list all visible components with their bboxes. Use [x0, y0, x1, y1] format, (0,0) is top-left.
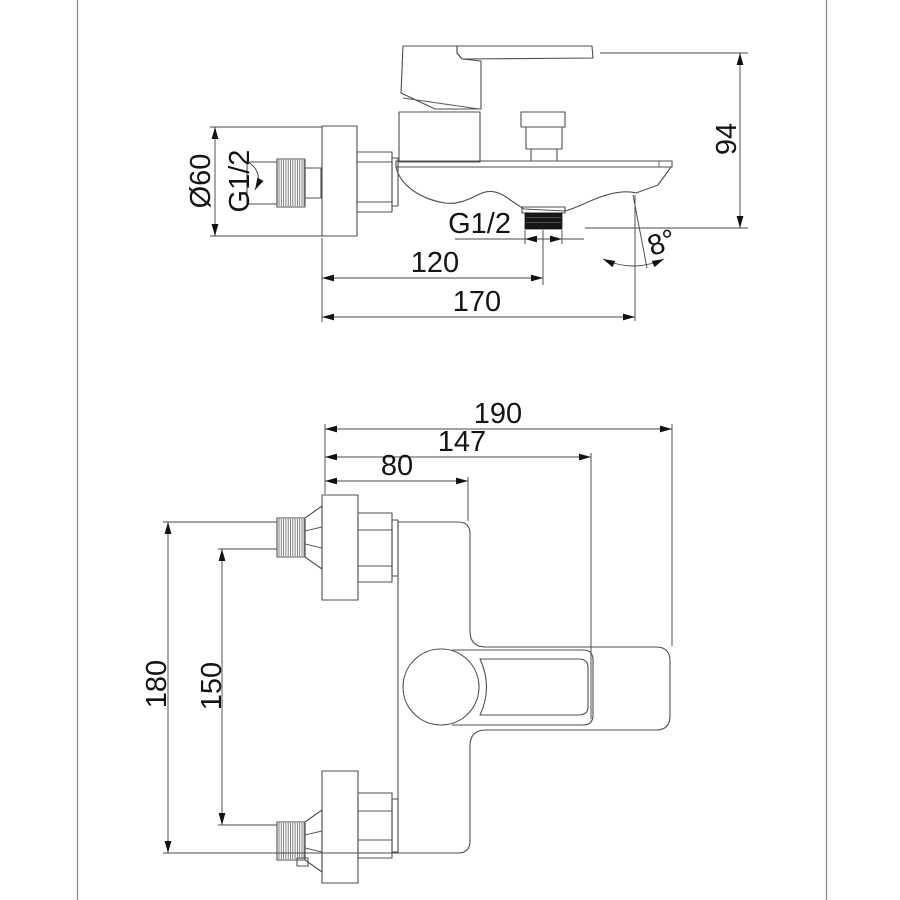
dim-80-label: 80 — [381, 450, 413, 482]
escutcheon-plan-upper — [322, 495, 358, 600]
mounting-nut-plan-upper — [358, 513, 392, 582]
dim-body-depth: 80 — [325, 450, 468, 521]
wall-connection-plan-upper — [277, 495, 398, 600]
dim-spout-angle-label: 8° — [643, 223, 680, 263]
dim-170-label: 170 — [453, 286, 501, 318]
wall-thread-label-group: G1/2 — [224, 150, 263, 213]
wall-thread-label: G1/2 — [224, 150, 256, 213]
cartridge-housing — [399, 112, 480, 162]
faucet-dimension-drawing: 8° Ø60 G1/2 94 — [0, 0, 900, 900]
plan-view: 190 147 80 180 — [141, 398, 672, 883]
lever-handle-side — [399, 46, 593, 162]
dim-height-label: 94 — [711, 123, 743, 155]
dim-overall-span: 180 — [141, 522, 398, 853]
diverter-knob — [521, 112, 565, 161]
handle-lever-plan — [452, 650, 593, 725]
side-view: 8° Ø60 G1/2 94 — [185, 46, 748, 322]
dim-overall-length-side: 170 — [322, 286, 635, 320]
wall-connection-plan-lower — [277, 771, 398, 883]
dim-180-label: 180 — [141, 660, 173, 708]
technical-drawing-page: 8° Ø60 G1/2 94 — [0, 0, 900, 900]
escutcheon-side — [322, 126, 357, 236]
dim-height: 94 — [585, 53, 748, 228]
escutcheon-plan-lower — [322, 771, 358, 883]
wall-connection-side — [247, 126, 398, 236]
handle-hub-plan — [403, 649, 479, 725]
outlet-thread-dark — [525, 213, 562, 229]
mounting-nut-side — [357, 152, 392, 212]
dim-147-label: 147 — [438, 426, 486, 458]
dim-outlet-thread: G1/2 — [448, 208, 584, 285]
dim-centers-distance: 150 — [196, 549, 277, 825]
outlet-thread-label: G1/2 — [448, 208, 511, 240]
dim-outlet-offset: 120 — [322, 238, 543, 322]
dim-150-label: 150 — [196, 662, 228, 710]
spout-body-side — [396, 161, 672, 229]
spout-angle-dimension: 8° — [602, 195, 681, 321]
faucet-body-plan — [398, 522, 670, 853]
mounting-nut-plan-lower — [358, 793, 392, 858]
dim-120-label: 120 — [411, 247, 459, 279]
dim-handle-reach: 147 — [325, 426, 591, 719]
dim-overall-length-plan: 190 — [325, 398, 672, 646]
dim-diameter-label: Ø60 — [185, 154, 217, 209]
